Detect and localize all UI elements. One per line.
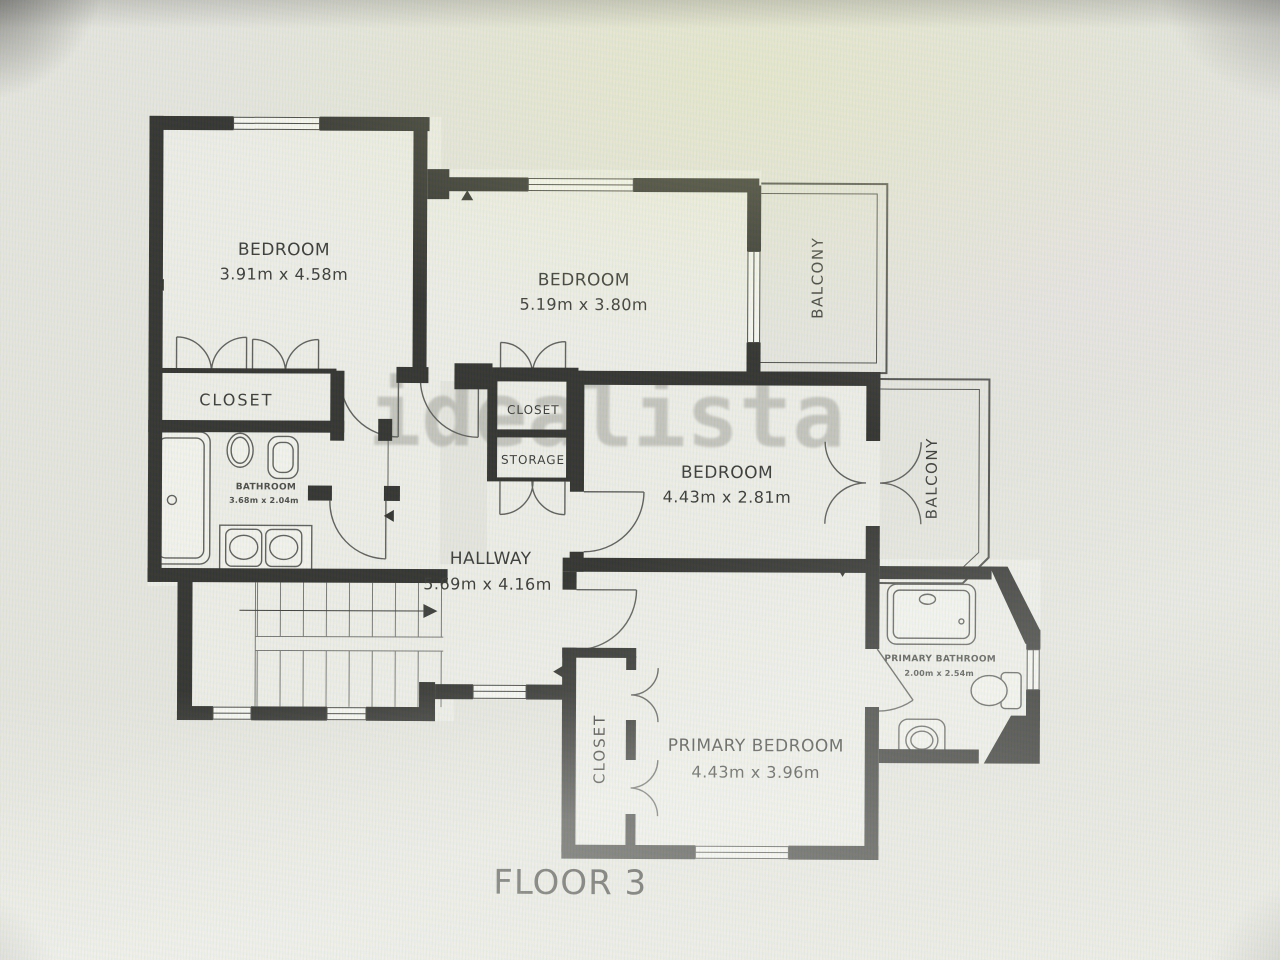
room-label-primary-bathroom: PRIMARY BATHROOM (884, 655, 996, 665)
label-closet-primary: CLOSET (591, 714, 608, 784)
room-label-bedroom1: BEDROOM (238, 241, 330, 260)
label-closet-bedroom2: CLOSET (507, 404, 560, 417)
label-closet-bedroom1: CLOSET (199, 391, 273, 409)
label-balcony-top: BALCONY (809, 237, 826, 319)
window (234, 117, 320, 129)
room-label-bedroom2: BEDROOM (538, 271, 630, 290)
room-dims-primary-bathroom: 2.00m x 2.54m (904, 670, 974, 679)
room-dims-hallway: 5.69m x 4.16m (423, 575, 552, 593)
floorplan-drawing: idealista (0, 0, 1280, 960)
room-dims-bedroom2: 5.19m x 3.80m (519, 296, 648, 314)
window (695, 846, 788, 858)
room-label-bathroom: BATHROOM (236, 483, 296, 493)
window (473, 685, 526, 698)
window (528, 179, 633, 191)
room-dims-primary-bedroom: 4.43m x 3.96m (691, 763, 820, 781)
room-dims-bathroom: 3.68m x 2.04m (229, 497, 299, 506)
toilet (227, 433, 253, 467)
bidet (268, 436, 298, 478)
floor-title: FLOOR 3 (493, 865, 647, 903)
shower-tub (887, 584, 975, 644)
window (748, 251, 760, 342)
room-label-hallway: HALLWAY (450, 550, 532, 569)
label-balcony-right: BALCONY (924, 437, 941, 519)
room-label-bedroom3: BEDROOM (681, 464, 773, 483)
window (327, 708, 366, 720)
floorplan-photo: idealista (0, 0, 1280, 960)
window (213, 707, 251, 719)
label-storage: STORAGE (501, 454, 565, 467)
room-dims-bedroom3: 4.43m x 2.81m (663, 488, 792, 506)
room-dims-bedroom1: 3.91m x 4.58m (220, 265, 349, 283)
room-label-primary-bedroom: PRIMARY BEDROOM (668, 737, 844, 756)
double-sink-vanity (220, 525, 312, 569)
window (1027, 650, 1039, 690)
floorplan: idealista (0, 0, 1280, 960)
toilet (971, 672, 1021, 708)
